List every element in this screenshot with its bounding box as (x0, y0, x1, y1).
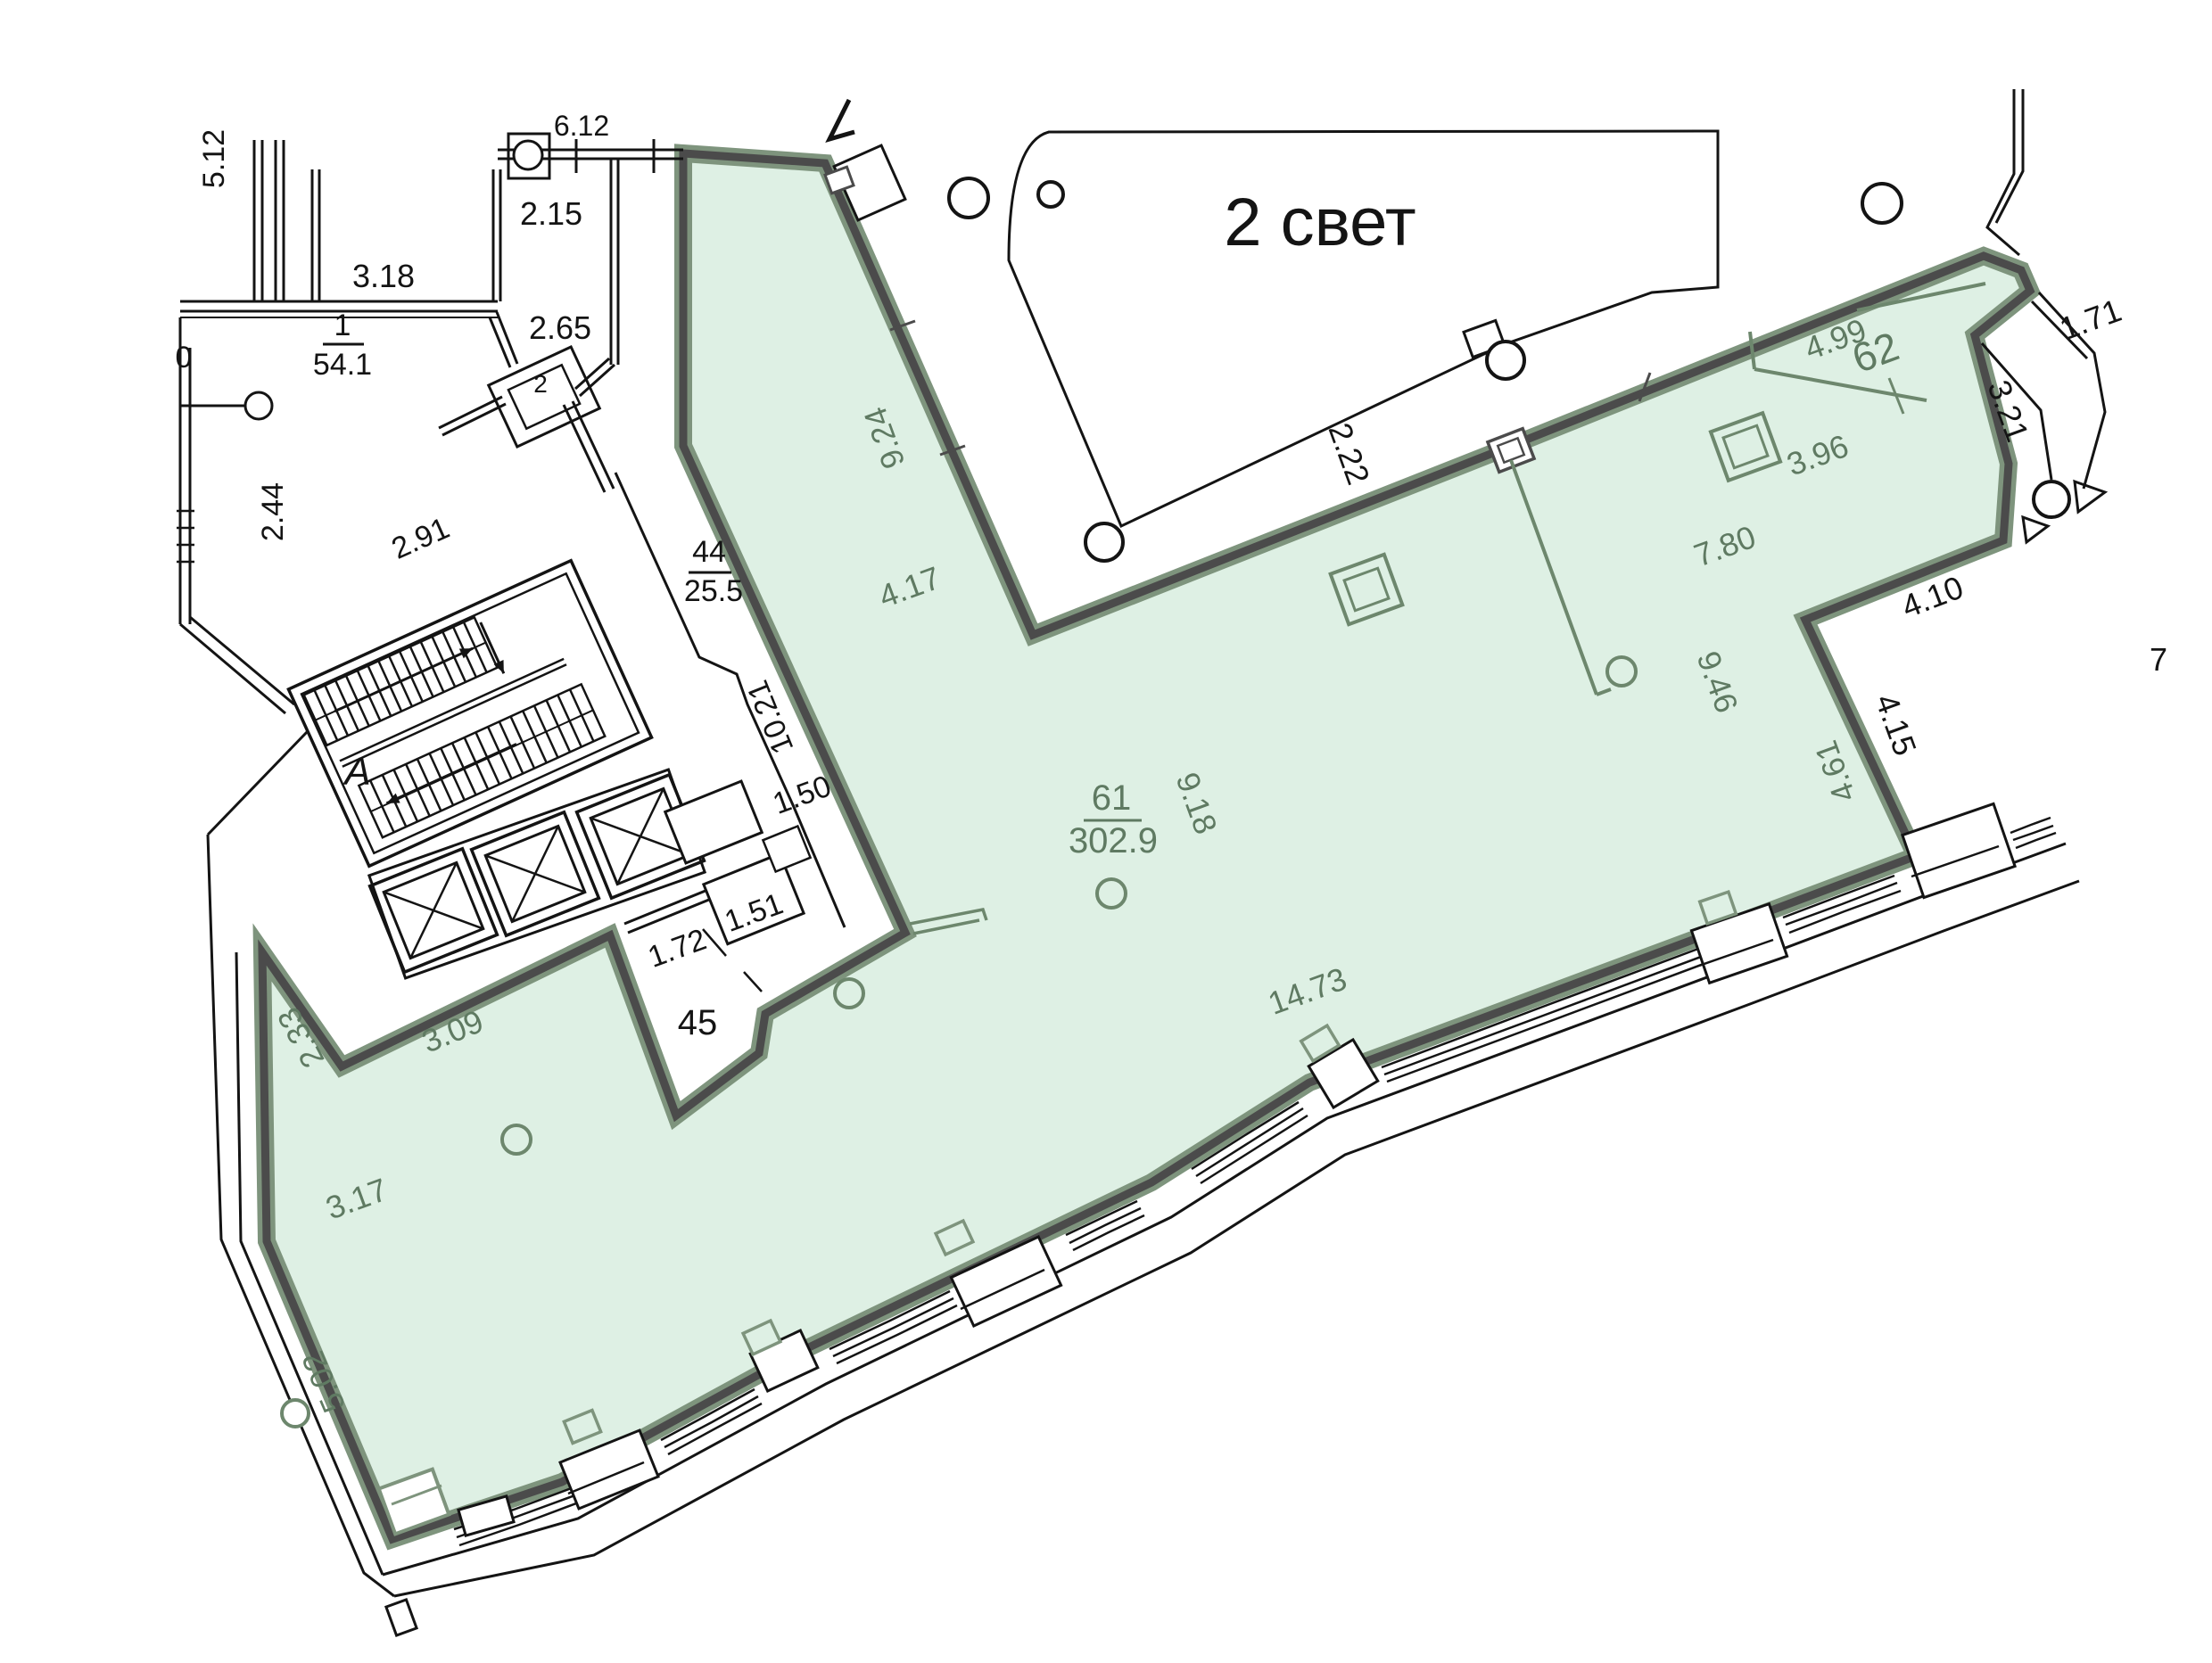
svg-text:3.18: 3.18 (352, 258, 415, 294)
svg-text:5.12: 5.12 (197, 129, 231, 188)
svg-text:54.1: 54.1 (313, 348, 372, 382)
svg-text:2.44: 2.44 (256, 482, 290, 541)
svg-text:2 свет: 2 свет (1224, 185, 1416, 260)
svg-text:6.12: 6.12 (554, 110, 609, 142)
svg-text:25.5: 25.5 (684, 574, 743, 608)
svg-text:45: 45 (678, 1003, 718, 1042)
svg-text:61: 61 (1092, 778, 1132, 818)
svg-text:2: 2 (533, 370, 548, 398)
svg-text:2.65: 2.65 (529, 309, 591, 346)
svg-text:7: 7 (2150, 641, 2167, 678)
svg-text:A: A (342, 750, 370, 794)
svg-text:0: 0 (176, 341, 193, 375)
svg-text:44: 44 (692, 535, 726, 569)
svg-text:1: 1 (334, 309, 351, 342)
svg-text:302.9: 302.9 (1069, 821, 1158, 860)
svg-text:2.15: 2.15 (520, 195, 582, 232)
